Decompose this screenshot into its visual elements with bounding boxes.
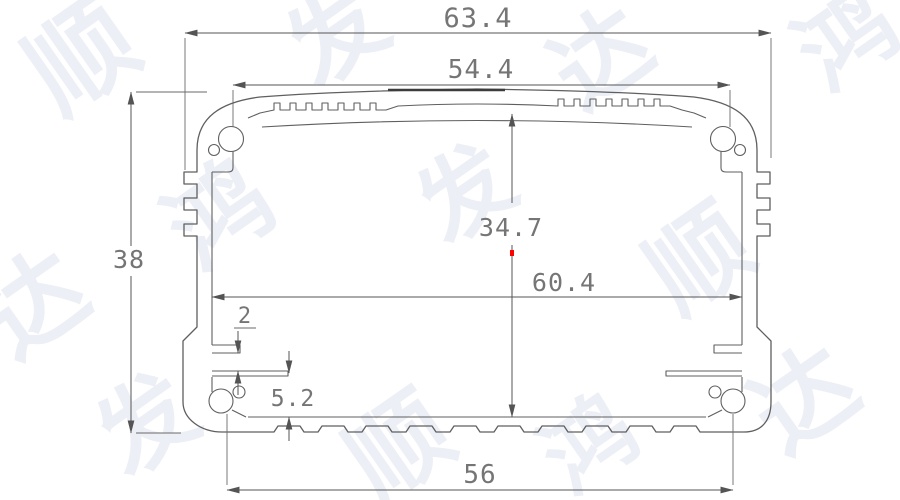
screw-boss-top-right — [711, 127, 746, 156]
dim-overall-width-label: 63.4 — [443, 3, 512, 34]
pcb-slot-rails-left — [212, 345, 288, 376]
red-marker-dot — [510, 250, 514, 256]
pcb-slot-rails-right — [666, 345, 742, 376]
dim-inner-height-label: 34.7 — [479, 213, 543, 242]
screw-boss-top-left — [209, 127, 244, 156]
dim-pcb-slot-height-label: 5.2 — [271, 386, 316, 412]
dim-inner-height: 34.7 — [479, 114, 543, 417]
inner-ceiling-lower-line — [262, 121, 692, 128]
extrusion-cad-drawing: 63.4 54.4 38 34.7 — [0, 0, 900, 500]
screw-boss-bottom-left — [209, 386, 246, 417]
drawing-canvas: 顺 发 达 鸿 鸿 发 顺 达 发 顺 达 鸿 — [0, 0, 900, 500]
dim-pcb-slot-gap: 2 — [234, 304, 256, 395]
dim-pcb-slot-gap-label: 2 — [238, 304, 252, 329]
enclosure-outer-profile — [183, 89, 771, 432]
dim-screw-spacing: 56 — [227, 414, 733, 490]
enclosure-profile — [183, 89, 771, 432]
inner-walls — [212, 152, 742, 392]
screw-boss-bottom-right — [708, 386, 745, 417]
dim-overall-height: 38 — [113, 92, 207, 433]
dim-lid-width-label: 54.4 — [448, 55, 515, 85]
dim-inner-width-label: 60.4 — [532, 268, 596, 297]
inner-ceiling-serrated-line — [248, 99, 706, 118]
dim-inner-width: 60.4 — [212, 268, 742, 297]
dim-overall-height-label: 38 — [113, 245, 145, 274]
dim-overall-width: 63.4 — [185, 3, 771, 170]
dim-screw-spacing-label: 56 — [463, 460, 496, 490]
